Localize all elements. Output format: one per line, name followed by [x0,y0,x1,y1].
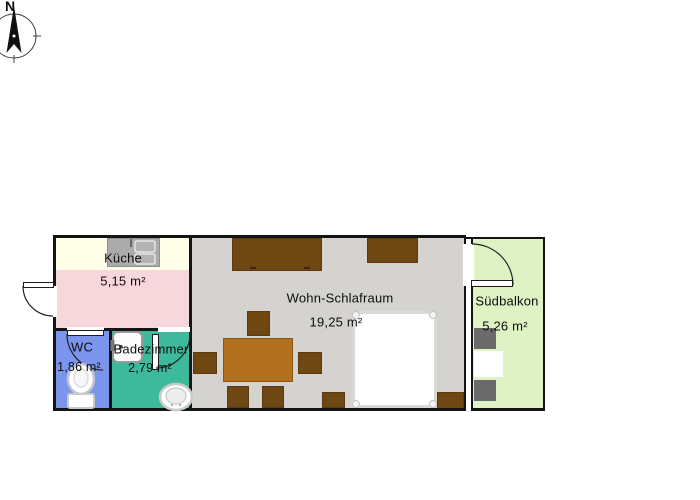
label-wohnschlafraum-area: 19,25 m² [310,315,363,330]
entrance-door-opening [52,286,57,317]
balcony-railing [464,237,545,239]
compass-ticks [14,36,41,63]
balcony-railing [543,237,545,411]
bathroom-door-opening [158,327,190,332]
chair [298,352,322,374]
wc-door-leaf [67,330,104,336]
label-badezimmer-name: Badezimmer [114,342,189,357]
dining-table [223,338,293,382]
cabinet [367,238,418,263]
label-suedbalkon-area: 5,26 m² [482,319,527,334]
chair [193,352,217,374]
label-kueche-name: Küche [104,251,142,266]
chair [227,386,249,408]
label-wc-name: WC [71,340,93,355]
wall [53,235,466,238]
wall [109,328,112,411]
entrance-door-leaf [23,282,54,288]
label-wohnschlafraum-name: Wohn-Schlafraum [287,291,394,306]
wall [189,235,192,411]
compass-north-label: N [5,0,15,14]
label-badezimmer-area: 2,79 m² [128,361,172,375]
balcony-chair [474,380,496,401]
compass-rose [0,6,41,63]
wall [53,235,56,411]
label-suedbalkon-name: Südbalkon [475,294,538,309]
balcony-door-leaf [471,280,513,287]
floor-plan: N Küche 5,15 m² WC 1,86 m² Badezimmer 2,… [0,0,700,500]
balcony-table [474,351,503,377]
chair [262,386,284,408]
label-wc-area: 1,86 m² [57,360,101,374]
bed [352,311,437,408]
wardrobe [232,238,322,271]
stool [322,392,345,408]
chair [247,311,270,336]
entrance-door-arc [23,286,53,316]
label-kueche-area: 5,15 m² [100,274,145,289]
sideboard [437,392,464,409]
